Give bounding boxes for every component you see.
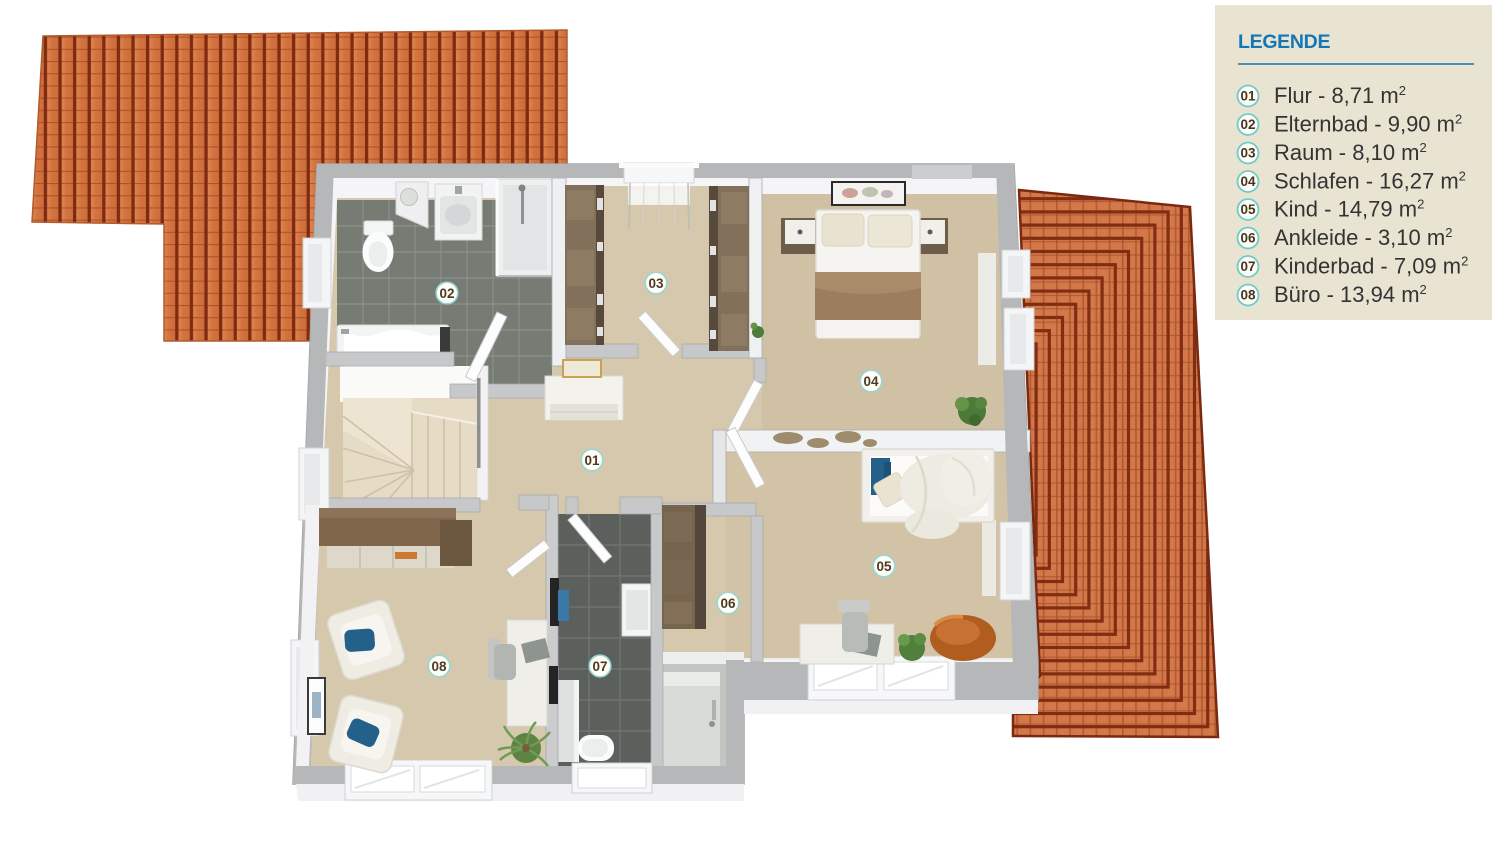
svg-text:LEGENDE: LEGENDE	[1238, 31, 1330, 53]
svg-text:Schlafen - 16,27 m2: Schlafen - 16,27 m2	[1274, 169, 1466, 194]
svg-text:01: 01	[1240, 89, 1256, 104]
svg-text:Kind - 14,79 m2: Kind - 14,79 m2	[1274, 197, 1424, 222]
svg-text:Ankleide - 3,10 m2: Ankleide - 3,10 m2	[1274, 225, 1452, 250]
svg-text:07: 07	[1240, 259, 1255, 274]
svg-text:05: 05	[1240, 202, 1256, 217]
svg-text:03: 03	[648, 276, 664, 291]
svg-text:Elternbad - 9,90 m2: Elternbad - 9,90 m2	[1274, 112, 1462, 137]
svg-text:Büro - 13,94 m2: Büro - 13,94 m2	[1274, 282, 1427, 307]
svg-text:06: 06	[1240, 231, 1256, 246]
svg-text:01: 01	[584, 453, 600, 468]
svg-text:03: 03	[1240, 146, 1256, 161]
svg-text:04: 04	[863, 374, 879, 389]
svg-text:08: 08	[431, 659, 447, 674]
svg-text:02: 02	[1240, 117, 1255, 132]
svg-text:Flur - 8,71 m2: Flur - 8,71 m2	[1274, 83, 1406, 108]
svg-text:Raum - 8,10 m2: Raum - 8,10 m2	[1274, 140, 1427, 165]
svg-text:04: 04	[1240, 174, 1256, 189]
svg-text:07: 07	[592, 659, 607, 674]
svg-text:Kinderbad - 7,09 m2: Kinderbad - 7,09 m2	[1274, 254, 1468, 279]
svg-text:02: 02	[439, 286, 454, 301]
svg-text:05: 05	[876, 559, 892, 574]
svg-text:06: 06	[720, 596, 736, 611]
svg-text:08: 08	[1240, 288, 1256, 303]
